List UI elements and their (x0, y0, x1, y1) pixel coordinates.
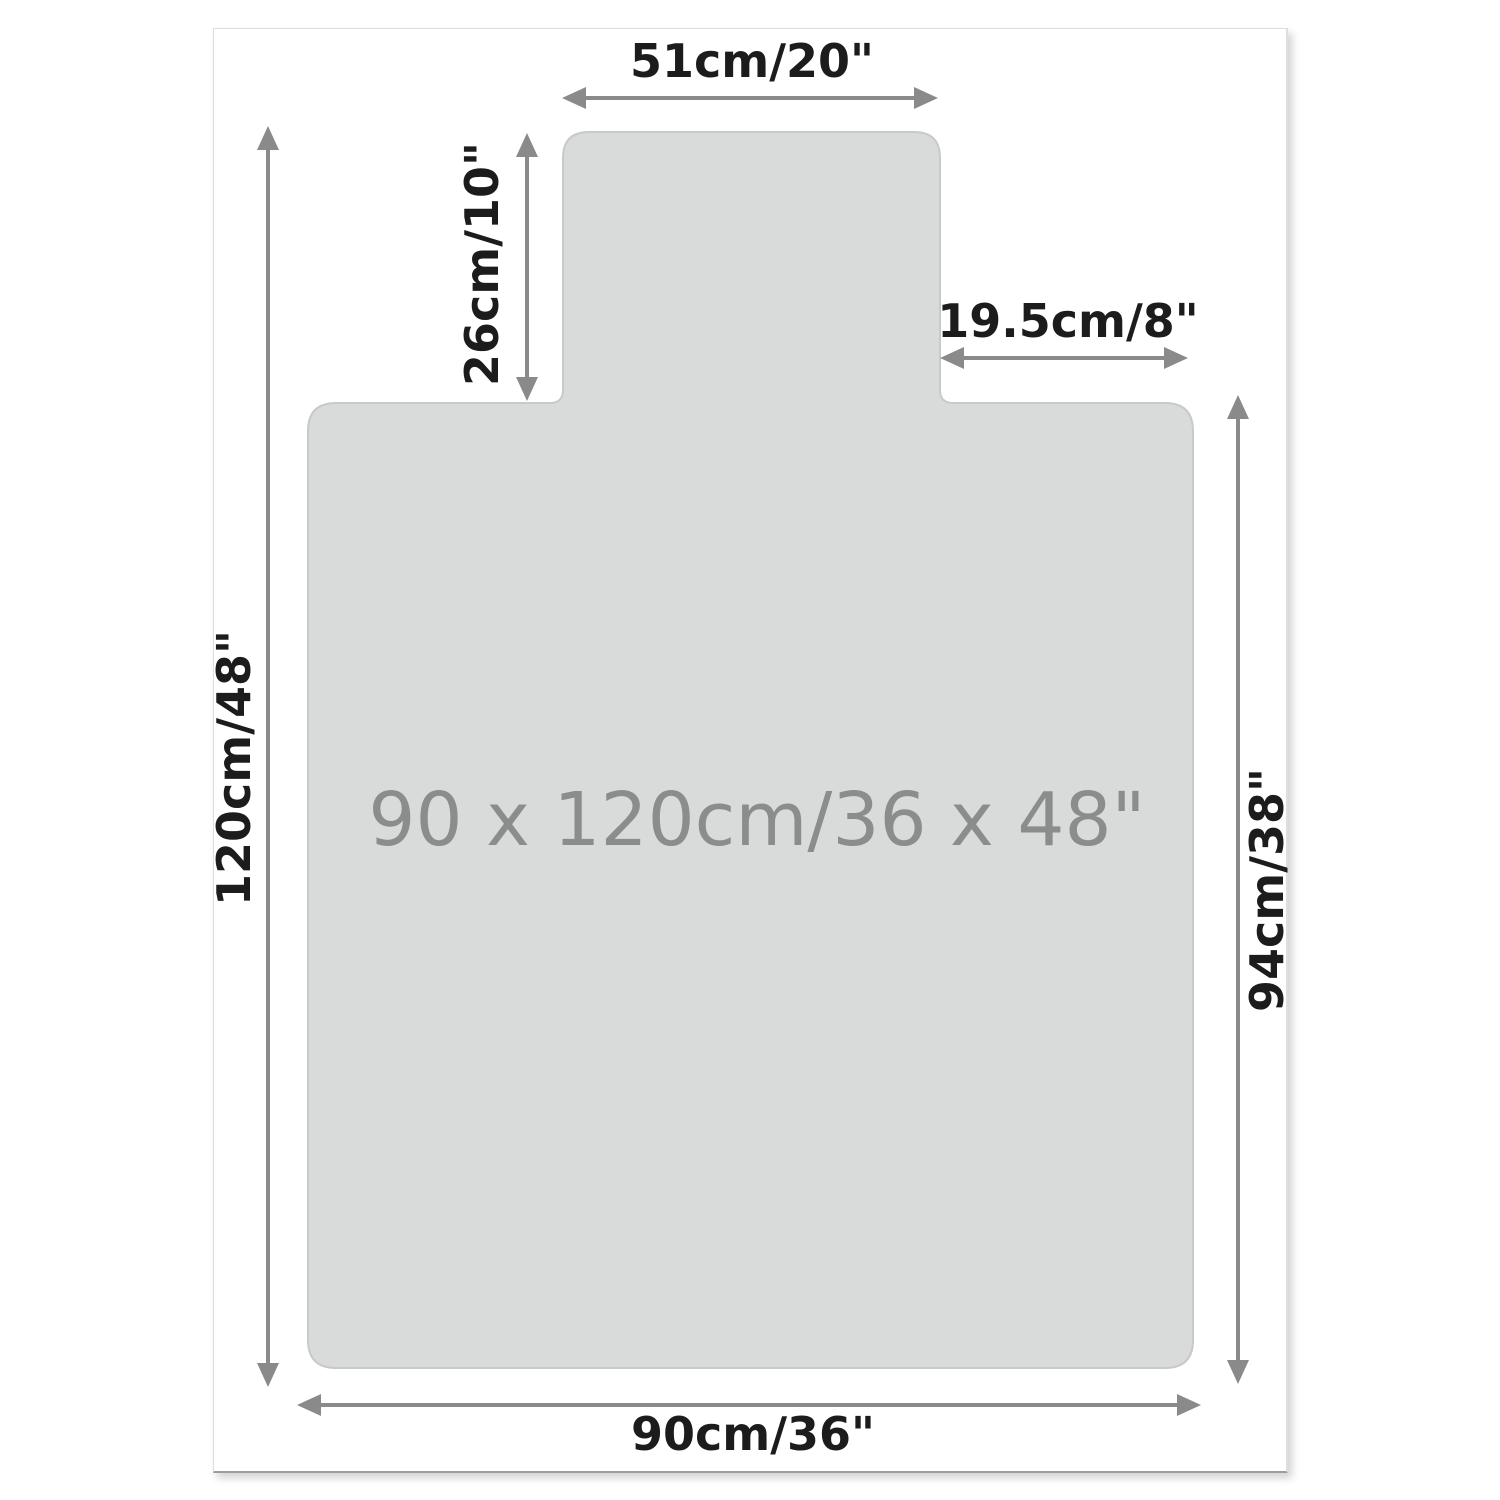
arrowhead-down-icon (257, 1363, 279, 1387)
arrowhead-up-icon (257, 126, 279, 150)
lip-width-arrow (562, 87, 938, 109)
overall-height-label: 120cm/48" (211, 630, 257, 906)
arrowhead-left-icon (297, 1394, 321, 1416)
arrowhead-down-icon (1227, 1360, 1249, 1384)
bottom-width-label: 90cm/36" (631, 1411, 875, 1457)
lip-height-label: 26cm/10" (459, 142, 505, 386)
arrowhead-right-icon (914, 87, 938, 109)
arrowhead-up-icon (1227, 395, 1249, 419)
arrowhead-left-icon (940, 347, 964, 369)
arrowhead-down-icon (516, 377, 538, 401)
shoulder-width-label: 19.5cm/8" (937, 298, 1198, 344)
lip-width-label: 51cm/20" (630, 38, 874, 84)
arrowhead-left-icon (562, 87, 586, 109)
mat-size-label: 90 x 120cm/36 x 48" (368, 783, 1145, 857)
shoulder-width-arrow (940, 347, 1188, 369)
lip-height-arrow (516, 133, 538, 401)
arrowhead-up-icon (516, 133, 538, 157)
chair-mat-dimension-diagram: 51cm/20" 26cm/10" 19.5cm/8" 120cm/48" 94… (0, 0, 1500, 1500)
arrowhead-right-icon (1177, 1394, 1201, 1416)
body-height-label: 94cm/38" (1244, 768, 1290, 1012)
arrowhead-right-icon (1164, 347, 1188, 369)
